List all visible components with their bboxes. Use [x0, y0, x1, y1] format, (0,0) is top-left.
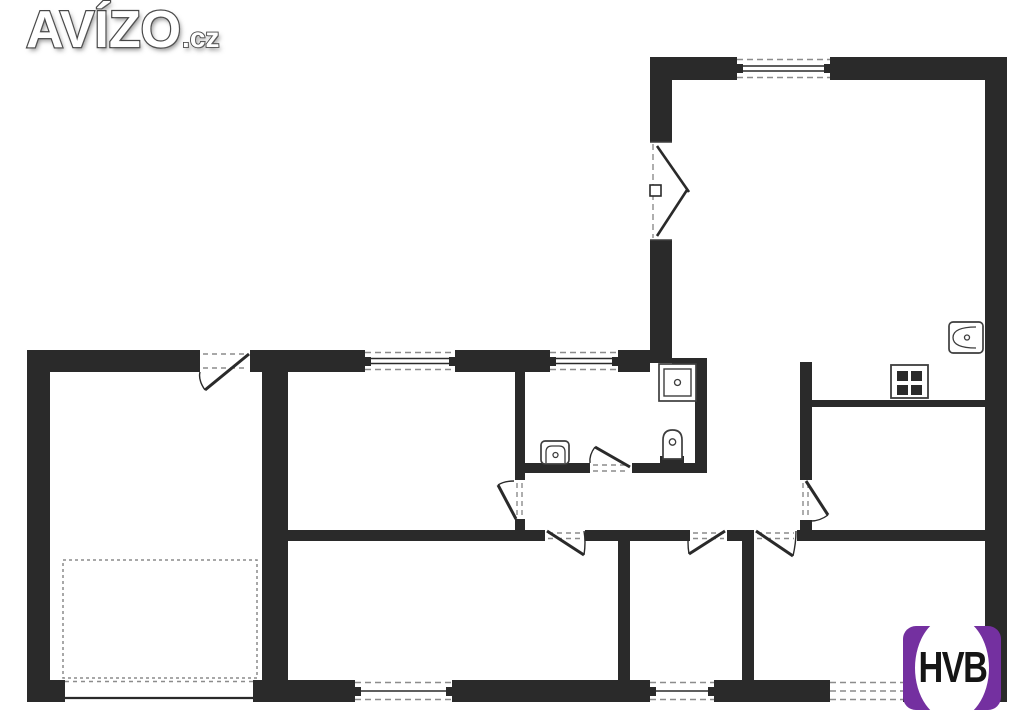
- wall-bottom-c: [452, 680, 650, 702]
- garage-area-outline: [63, 560, 257, 678]
- layer-windows: [65, 57, 903, 702]
- wall-right-outer: [985, 57, 1007, 702]
- hvb-logo-text: HVB: [918, 646, 986, 690]
- floorplan-image: AVÍZO.cz HVB: [0, 0, 1024, 728]
- layer-doors: [200, 142, 828, 556]
- wall-rooms-divider-1: [618, 541, 630, 680]
- stove-icon: [891, 365, 928, 398]
- door-mid-left-room: [514, 480, 525, 519]
- avizo-logo-text: AVÍZO: [26, 1, 181, 59]
- wall-bottom-a: [27, 680, 65, 702]
- wall-lower-c: [727, 530, 754, 541]
- wall-basin-icon: [949, 322, 983, 353]
- layer-walls: [27, 57, 1007, 702]
- avizo-logo-suffix: .cz: [182, 22, 219, 53]
- wall-main-top-c: [455, 350, 550, 372]
- wall-lower-a: [288, 530, 545, 541]
- wall-kitchen-divider: [812, 400, 985, 407]
- wall-lower-d: [797, 530, 985, 541]
- wall-tr-left-lower: [650, 240, 672, 363]
- window-mid-left: [365, 350, 455, 372]
- avizo-logo: AVÍZO.cz: [26, 0, 219, 60]
- hvb-logo: HVB: [903, 626, 1001, 710]
- wall-bottom-d: [714, 680, 830, 702]
- wall-left-outer: [27, 350, 50, 702]
- wall-hall-partition: [800, 362, 812, 480]
- wall-main-top-b: [250, 350, 365, 372]
- wall-main-top-a: [27, 350, 200, 372]
- window-top: [737, 57, 830, 80]
- wall-lower-b: [585, 530, 690, 541]
- wall-garage-partition: [262, 372, 288, 702]
- window-bathroom: [550, 350, 618, 372]
- wall-main-top-d: [618, 350, 650, 372]
- door-room-a: [545, 530, 585, 541]
- wall-tr-left-upper: [650, 57, 672, 142]
- floor-plan-svg: [0, 0, 1024, 728]
- wall-rooms-divider-2: [742, 541, 754, 680]
